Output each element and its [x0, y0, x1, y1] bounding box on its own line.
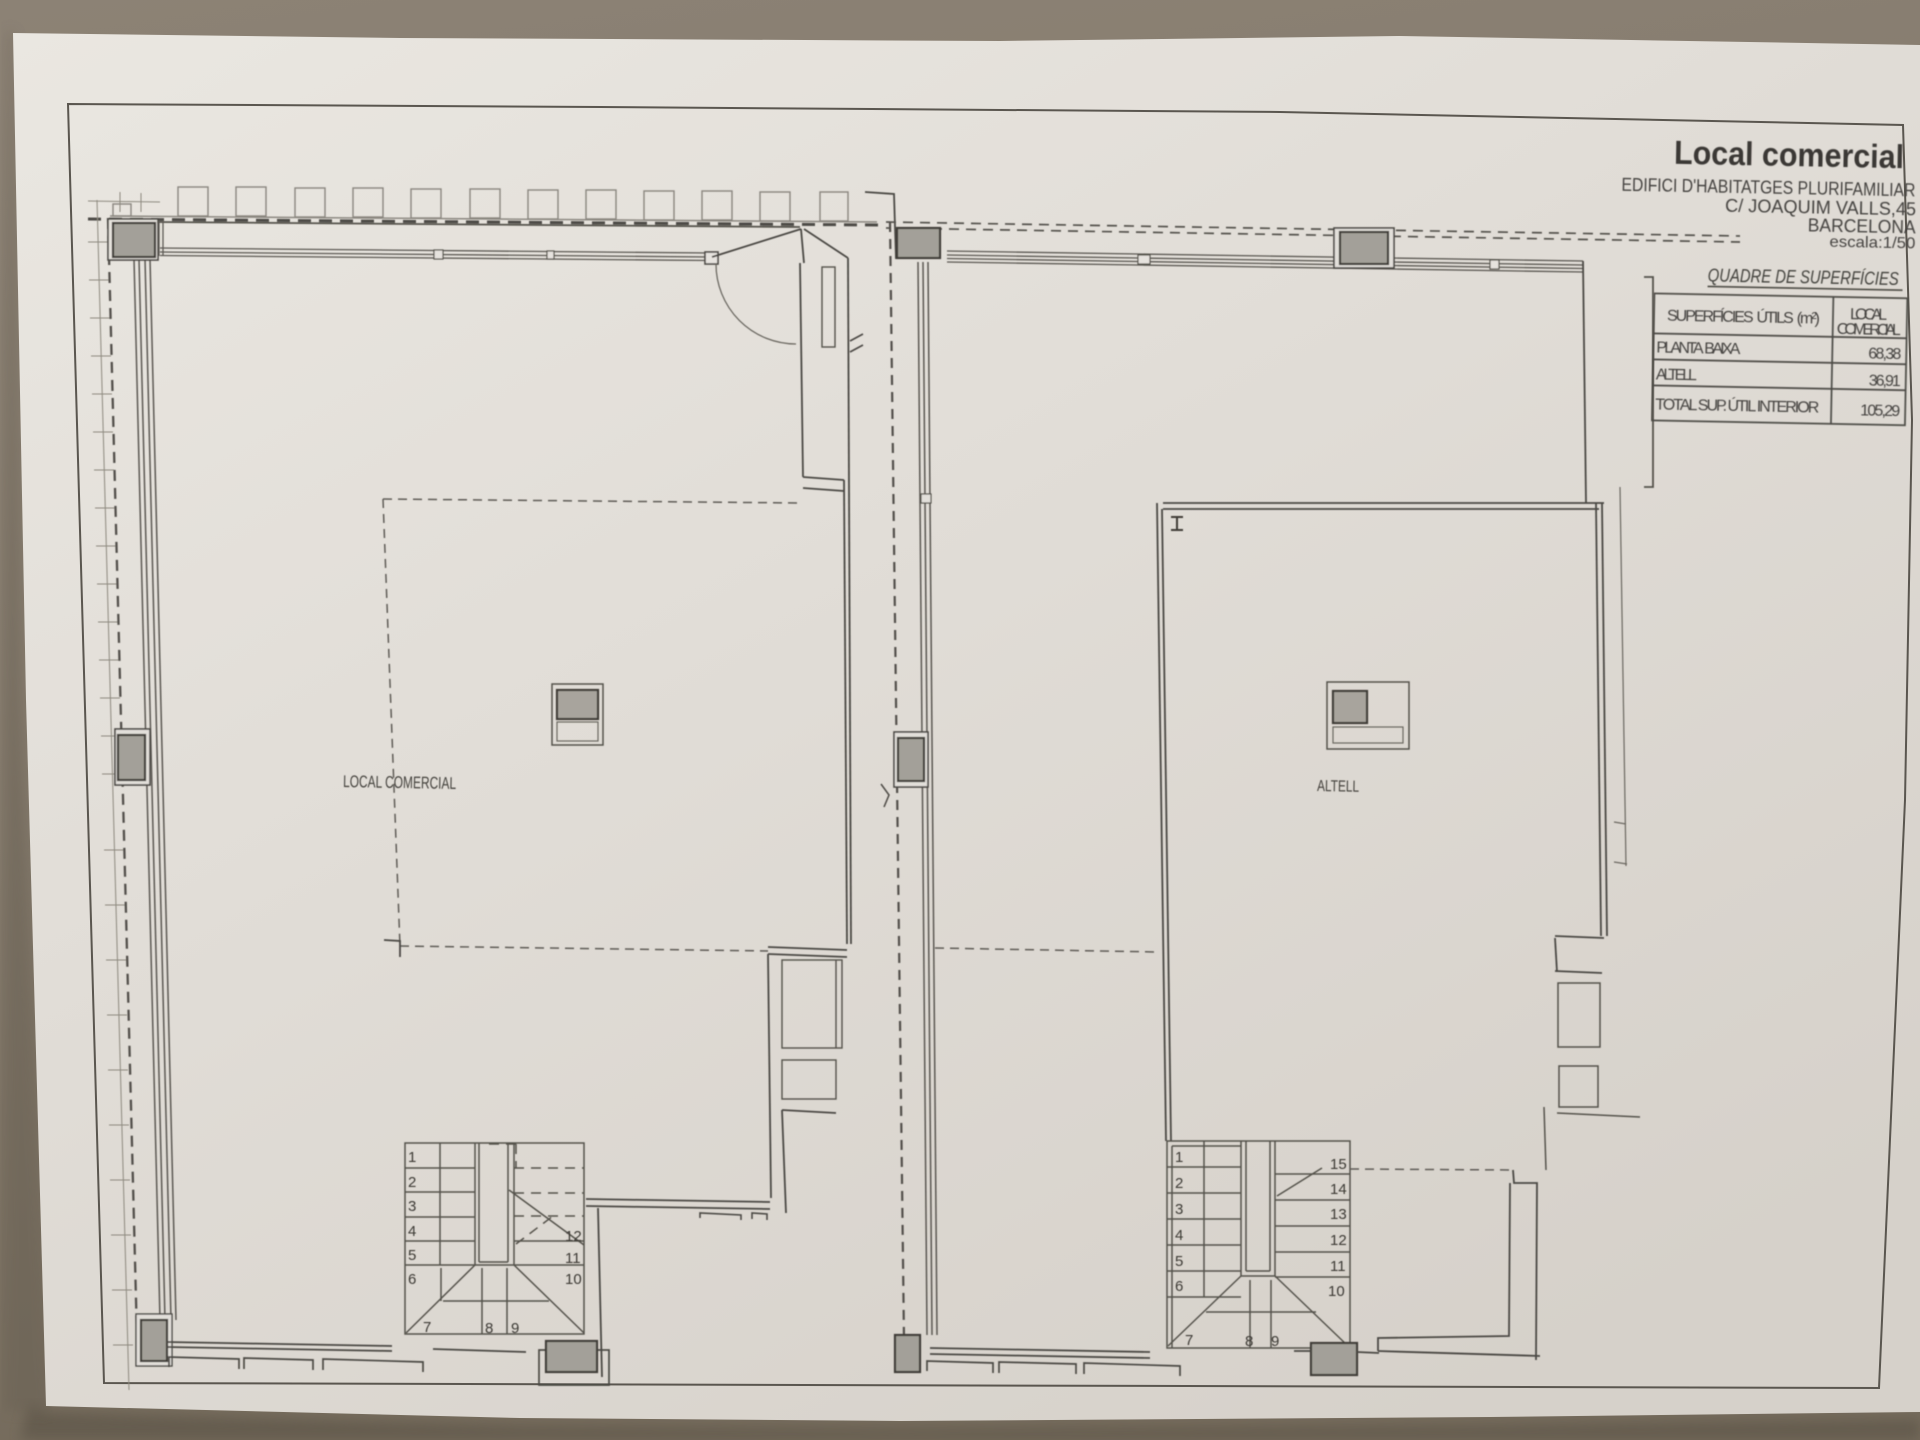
svg-text:5: 5	[408, 1247, 416, 1264]
svg-text:8: 8	[1245, 1333, 1253, 1350]
svg-text:9: 9	[1271, 1333, 1279, 1350]
svg-text:68,38: 68,38	[1868, 346, 1901, 364]
svg-text:Local comercial: Local comercial	[1674, 134, 1905, 175]
svg-text:6: 6	[1175, 1278, 1183, 1295]
svg-text:ALTELL: ALTELL	[1656, 366, 1697, 384]
svg-text:11: 11	[1330, 1258, 1346, 1275]
svg-text:COMERCIAL: COMERCIAL	[1837, 321, 1901, 339]
svg-text:12: 12	[1330, 1232, 1347, 1249]
svg-text:9: 9	[511, 1320, 519, 1337]
svg-text:1: 1	[408, 1149, 416, 1166]
svg-text:14: 14	[1330, 1181, 1347, 1198]
svg-text:7: 7	[1185, 1332, 1193, 1349]
svg-text:10: 10	[565, 1271, 582, 1288]
svg-text:4: 4	[408, 1223, 416, 1240]
svg-text:4: 4	[1175, 1227, 1183, 1244]
svg-text:36,91: 36,91	[1869, 373, 1901, 391]
svg-text:LOCAL COMERCIAL: LOCAL COMERCIAL	[343, 772, 456, 793]
svg-text:12: 12	[565, 1228, 582, 1245]
svg-text:13: 13	[1330, 1206, 1347, 1223]
svg-text:7: 7	[423, 1319, 431, 1336]
svg-text:15: 15	[1330, 1156, 1347, 1173]
svg-text:5: 5	[1175, 1253, 1183, 1270]
svg-text:escala:1/50: escala:1/50	[1829, 234, 1915, 253]
svg-text:10: 10	[1328, 1283, 1345, 1300]
svg-text:QUADRE DE SUPERFÍCIES: QUADRE DE SUPERFÍCIES	[1708, 264, 1900, 289]
svg-text:105,29: 105,29	[1860, 402, 1900, 420]
svg-text:ALTELL: ALTELL	[1317, 778, 1359, 796]
svg-text:PLANTA BAIXA: PLANTA BAIXA	[1656, 339, 1741, 358]
svg-text:2: 2	[408, 1174, 416, 1191]
svg-text:2: 2	[1175, 1175, 1183, 1192]
svg-text:11: 11	[565, 1250, 581, 1267]
svg-text:1: 1	[1175, 1149, 1183, 1166]
svg-text:3: 3	[1175, 1201, 1183, 1218]
svg-text:6: 6	[408, 1271, 416, 1288]
svg-text:8: 8	[485, 1320, 493, 1337]
svg-text:3: 3	[408, 1198, 416, 1215]
